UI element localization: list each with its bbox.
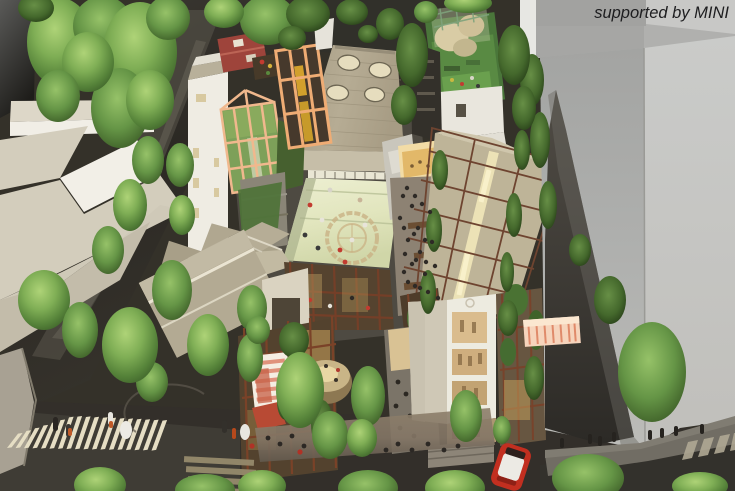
- svg-text:supported by MINI: supported by MINI: [594, 4, 729, 22]
